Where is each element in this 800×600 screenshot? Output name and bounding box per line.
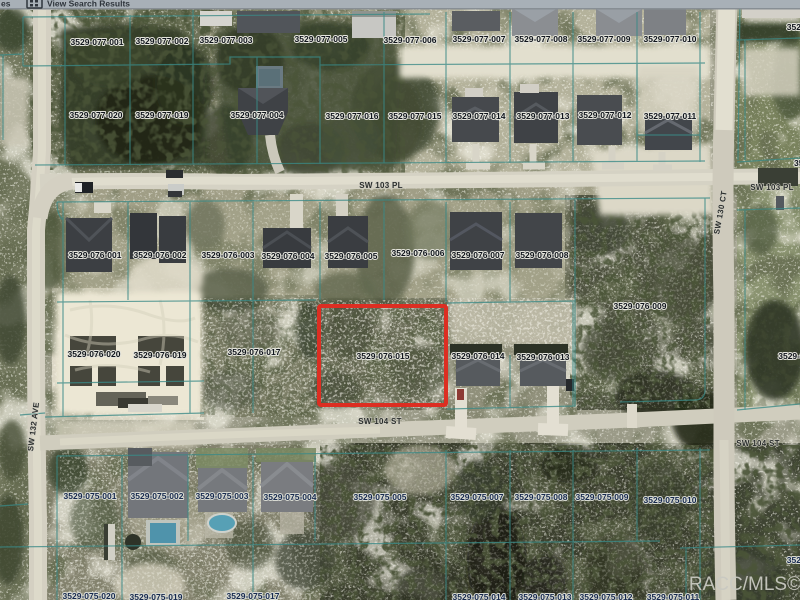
svg-text:SW 104 ST: SW 104 ST: [736, 439, 780, 448]
svg-text:3529-077-014: 3529-077-014: [453, 111, 506, 121]
svg-text:3529-077-002: 3529-077-002: [136, 36, 189, 46]
svg-text:3529-075-001: 3529-075-001: [64, 491, 117, 501]
svg-text:3529-077-016: 3529-077-016: [326, 111, 379, 121]
svg-text:3529-075-013: 3529-075-013: [519, 592, 572, 600]
svg-text:3529-076-013: 3529-076-013: [517, 352, 570, 362]
svg-text:3529-077-001: 3529-077-001: [71, 37, 124, 47]
svg-text:3529-077-019: 3529-077-019: [136, 110, 189, 120]
svg-text:3529-077-012: 3529-077-012: [579, 110, 632, 120]
svg-text:3529-077-004: 3529-077-004: [231, 110, 284, 120]
svg-text:3529-076-002: 3529-076-002: [134, 250, 187, 260]
svg-text:3529-076-003: 3529-076-003: [202, 250, 255, 260]
svg-text:3529-077-008: 3529-077-008: [515, 34, 568, 44]
svg-text:3529-077-009: 3529-077-009: [578, 34, 631, 44]
svg-text:3529-077-020: 3529-077-020: [70, 110, 123, 120]
svg-text:3529-076-005: 3529-076-005: [325, 251, 378, 261]
svg-text:SW 103 PL: SW 103 PL: [750, 183, 794, 192]
svg-text:3529-075-003: 3529-075-003: [196, 491, 249, 501]
svg-text:3529-0: 3529-0: [787, 22, 800, 32]
svg-text:3529-077-007: 3529-077-007: [453, 34, 506, 44]
svg-text:3529-076-015: 3529-076-015: [357, 351, 410, 361]
svg-text:3529-075-002: 3529-075-002: [131, 491, 184, 501]
svg-text:3529-076-019: 3529-076-019: [134, 350, 187, 360]
svg-text:3529-076-001: 3529-076-001: [69, 250, 122, 260]
svg-text:3529-075-009: 3529-075-009: [576, 492, 629, 502]
svg-text:3529-075-019: 3529-075-019: [130, 592, 183, 600]
svg-text:es: es: [1, 0, 11, 9]
svg-text:3529-077-010: 3529-077-010: [644, 34, 697, 44]
svg-text:3529-077-005: 3529-077-005: [295, 34, 348, 44]
svg-text:3529-075-017: 3529-075-017: [227, 591, 280, 600]
svg-text:3529-075-020: 3529-075-020: [63, 591, 116, 600]
svg-text:3529-0: 3529-0: [787, 555, 800, 565]
svg-text:RACC/MLS©: RACC/MLS©: [689, 574, 800, 595]
svg-text:3529-075-010: 3529-075-010: [644, 495, 697, 505]
svg-text:3529-076-007: 3529-076-007: [452, 250, 505, 260]
svg-text:SW 103 PL: SW 103 PL: [359, 181, 403, 190]
svg-text:3529-076-008: 3529-076-008: [516, 250, 569, 260]
svg-text:View Search Results: View Search Results: [47, 0, 130, 9]
svg-text:3529-075-005: 3529-075-005: [354, 492, 407, 502]
svg-text:3529-076-009: 3529-076-009: [614, 301, 667, 311]
svg-text:3529-076-020: 3529-076-020: [68, 349, 121, 359]
svg-text:3529-077-006: 3529-077-006: [384, 35, 437, 45]
svg-text:3529-077-011: 3529-077-011: [644, 111, 697, 121]
svg-text:SW 104 ST: SW 104 ST: [358, 417, 402, 426]
svg-text:3529-076-006: 3529-076-006: [392, 248, 445, 258]
svg-text:3529-076-0: 3529-076-0: [778, 351, 800, 361]
svg-text:3529-075-004: 3529-075-004: [264, 492, 317, 502]
svg-text:3529-075-014: 3529-075-014: [453, 592, 506, 600]
svg-text:3529-075-008: 3529-075-008: [515, 492, 568, 502]
svg-text:3529-075-012: 3529-075-012: [580, 592, 633, 600]
svg-text:3529-076-004: 3529-076-004: [262, 251, 315, 261]
svg-text:3529-075-007: 3529-075-007: [451, 492, 504, 502]
svg-text:3529-076-014: 3529-076-014: [452, 351, 505, 361]
svg-text:3529-077-015: 3529-077-015: [389, 111, 442, 121]
svg-text:3529-076-017: 3529-076-017: [228, 347, 281, 357]
svg-text:3529-077-013: 3529-077-013: [517, 111, 570, 121]
svg-text:3529-077: 3529-077: [794, 158, 800, 168]
svg-text:3529-077-003: 3529-077-003: [200, 35, 253, 45]
